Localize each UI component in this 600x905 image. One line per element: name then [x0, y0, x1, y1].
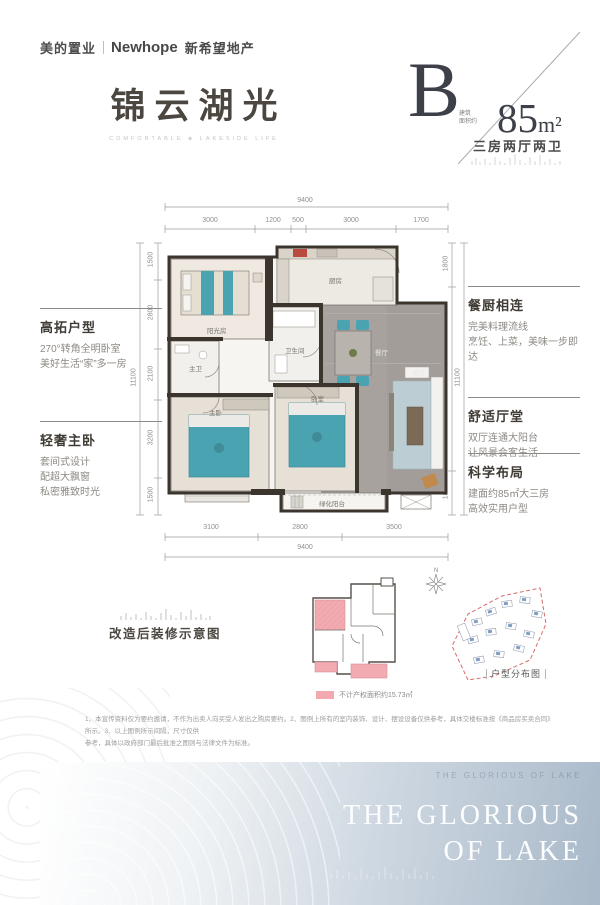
- dim-top-seg: 3000: [331, 217, 371, 224]
- room-balcony: [283, 493, 431, 511]
- compass-icon: [426, 574, 446, 594]
- dim-top-seg: 3000: [190, 217, 230, 224]
- feature-rule: [468, 286, 580, 287]
- project-title-en: COMFORTABLE ◈ LAKESIDE LIFE: [88, 136, 300, 142]
- skyline-icon: [118, 606, 213, 620]
- brand-divider: [103, 41, 104, 54]
- feature-left-2: 轻奢主卧 套间式设计 配超大飘窗 私密雅致时光: [40, 421, 162, 500]
- dim-top-seg: 1700: [401, 217, 441, 224]
- feature-left-1: 高拓户型 270°转角全明卧室 美好生活“家”多一房: [40, 308, 162, 372]
- label-master-bed: 主卧: [209, 408, 223, 417]
- room-sunroom: [171, 259, 267, 339]
- feature-line: 美好生活“家”多一房: [40, 357, 162, 372]
- ripple-pattern: [40, 762, 340, 905]
- renovation-legend: 不计产权面积约15.73㎡: [316, 690, 413, 700]
- feature-line: 烹饪、上菜，美味一步即达: [468, 335, 580, 365]
- brand-cn-left: 美的置业: [40, 38, 96, 57]
- dim-bottom-seg: 3500: [374, 524, 414, 531]
- feature-title: 餐厨相连: [468, 295, 580, 314]
- feature-line: 配超大飘窗: [40, 470, 162, 485]
- feature-title: 高拓户型: [40, 317, 162, 336]
- feature-title: 舒适厅堂: [468, 406, 580, 425]
- renovation-label: 改造后装修示意图: [100, 623, 230, 642]
- area-number: 85: [497, 95, 538, 141]
- label-living: 客厅: [413, 368, 427, 377]
- feature-rule: [468, 397, 580, 398]
- site-buildings: [457, 597, 542, 664]
- dim-bottom-seg: 3100: [191, 524, 231, 531]
- banner-headline: THE GLORIOUS OF LAKE: [343, 798, 582, 870]
- area-note-line1: 建筑: [459, 110, 477, 118]
- dim-bottom-seg: 2800: [280, 524, 320, 531]
- siteplan-label-text: 户型分布图: [491, 667, 541, 680]
- project-title: 锦云湖光 COMFORTABLE ◈ LAKESIDE LIFE: [88, 78, 300, 142]
- feature-line: 建面约85㎡大三房: [468, 487, 580, 502]
- feature-title: 科学布局: [468, 462, 580, 481]
- brand-cn-right: 新希望地产: [185, 38, 255, 57]
- skyline-icon: [470, 152, 562, 165]
- room-bathroom: [269, 307, 321, 381]
- feature-line: 高效实用户型: [468, 502, 580, 517]
- dim-top-seg: 500: [278, 217, 318, 224]
- legend-swatch: [316, 691, 334, 699]
- label-balcony: 绿化阳台: [319, 499, 345, 508]
- label-master-bath: 主卫: [189, 364, 203, 373]
- feature-line: 双厅连通大阳台: [468, 431, 580, 446]
- feature-rule: [40, 308, 162, 309]
- label-bedroom: 卧室: [311, 394, 325, 403]
- dim-top-total: 9400: [285, 197, 325, 204]
- label-dining: 餐厅: [375, 348, 389, 357]
- dim-right-total: 11100: [455, 361, 462, 395]
- area-unit: m²: [538, 112, 562, 137]
- banner-watermark: THE GLORIOUS OF LAKE: [436, 771, 582, 780]
- feature-rule: [40, 421, 162, 422]
- skyline-icon: [328, 865, 438, 879]
- siteplan-label: 户型分布图: [486, 667, 546, 680]
- banner-line1: THE GLORIOUS: [343, 798, 582, 834]
- brand-logo: 美的置业 Newhope 新希望地产: [40, 38, 255, 57]
- feature-line: 套间式设计: [40, 455, 162, 470]
- label-kitchen: 厨房: [329, 276, 342, 285]
- lake-banner: THE GLORIOUS OF LAKE THE GLORIOUS OF LAK…: [40, 762, 600, 905]
- legend-text: 不计产权面积约15.73㎡: [339, 690, 413, 700]
- feature-rule: [468, 453, 580, 454]
- brand-en: Newhope: [111, 39, 178, 56]
- feature-right-3: 科学布局 建面约85㎡大三房 高效实用户型: [468, 453, 580, 517]
- renovation-mini-plan: [303, 574, 405, 688]
- unit-area: 85m²: [497, 94, 562, 142]
- feature-line: 完美料理流线: [468, 320, 580, 335]
- room-kitchen: [277, 247, 397, 305]
- poster-page: 美的置业 Newhope 新希望地产 锦云湖光 COMFORTABLE ◈ LA…: [0, 0, 600, 905]
- floor-plan: 阳光房 主卫 卫生间 厨房 主卧 卧室 绿化阳台 餐厅 客厅: [165, 243, 450, 515]
- feature-title: 轻奢主卧: [40, 430, 162, 449]
- feature-right-1: 餐厨相连 完美料理流线 烹饪、上菜，美味一步即达: [468, 286, 580, 365]
- dim-bottom-total: 9400: [285, 544, 325, 551]
- label-bar: [545, 669, 546, 679]
- feature-line: 私密雅致时光: [40, 485, 162, 500]
- area-note: 建筑 面积约: [459, 110, 477, 126]
- label-sunroom: 阳光房: [207, 326, 227, 335]
- feature-line: 270°转角全明卧室: [40, 342, 162, 357]
- label-bar: [486, 669, 487, 679]
- project-title-cn: 锦云湖光: [88, 78, 300, 129]
- dim-left-seg: 1500: [148, 243, 155, 277]
- area-note-line2: 面积约: [459, 118, 477, 126]
- feature-right-2: 舒适厅堂 双厅连通大阳台 让风景会客生活: [468, 397, 580, 461]
- label-bath: 卫生间: [285, 346, 305, 355]
